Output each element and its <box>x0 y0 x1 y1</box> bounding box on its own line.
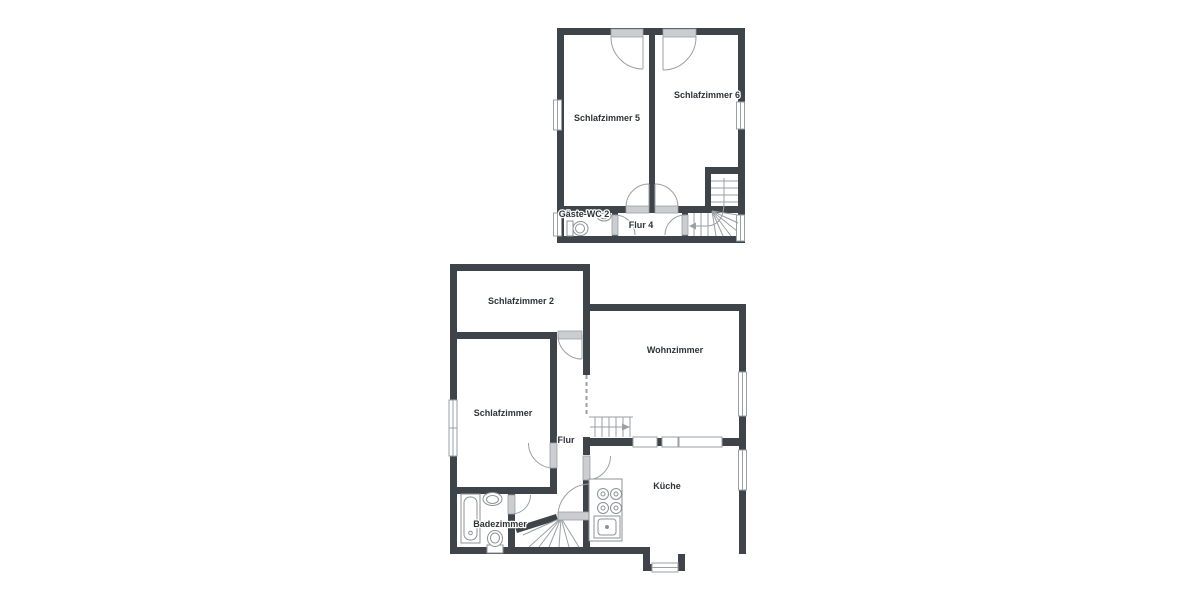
upper-floor-plan: Schlafzimmer 5 Schlafzimmer 6 Gäste-WC 2… <box>554 28 746 243</box>
window-wohnzimmer-icon <box>739 372 747 416</box>
window-entry-icon <box>652 563 678 572</box>
pass-through-window-icon <box>633 437 722 447</box>
toilet-icon <box>567 221 588 236</box>
floorplan-canvas: Schlafzimmer 5 Schlafzimmer 6 Gäste-WC 2… <box>0 0 1200 600</box>
room-label-schlafzimmer6: Schlafzimmer 6 <box>674 90 740 100</box>
door-schlafzimmer-icon <box>529 443 558 468</box>
bathroom-sink-icon <box>483 493 502 506</box>
room-label-badezimmer: Badezimmer <box>473 519 527 529</box>
window-kueche-icon <box>739 450 747 490</box>
room-label-gaeste-wc: Gäste-WC 2 <box>559 209 610 219</box>
window-schlafzimmer-icon <box>449 400 457 456</box>
lower-floor-plan: Schlafzimmer 2 Wohnzimmer Schlafzimmer F… <box>449 264 747 572</box>
oven-icon <box>594 516 620 538</box>
window-schlafzimmer5-icon <box>554 100 562 130</box>
door-badezimmer-icon <box>508 495 531 514</box>
door-schlafzimmer2-icon <box>558 331 582 359</box>
door-schlafzimmer6-icon <box>663 29 696 70</box>
room-label-schlafzimmer: Schlafzimmer <box>474 408 533 418</box>
room-label-schlafzimmer2: Schlafzimmer 2 <box>488 296 554 306</box>
door-flur4-schlafzimmer5-icon <box>626 184 649 213</box>
room-label-wohnzimmer: Wohnzimmer <box>647 345 704 355</box>
door-schlafzimmer5-icon <box>611 29 643 69</box>
door-flur4-stairs-icon <box>665 215 688 235</box>
room-label-schlafzimmer5: Schlafzimmer 5 <box>574 113 640 123</box>
bathroom-toilet-icon <box>487 531 503 554</box>
door-flur4-schlafzimmer6-icon <box>655 184 678 213</box>
window-stairs-upper-icon <box>737 215 745 241</box>
room-label-flur: Flur <box>558 435 575 445</box>
floorplan-drawing: Schlafzimmer 5 Schlafzimmer 6 Gäste-WC 2… <box>0 0 1200 600</box>
door-kueche-icon <box>583 456 611 480</box>
room-label-flur4: Flur 4 <box>629 220 654 230</box>
staircase-up-run-icon <box>589 417 633 437</box>
window-schlafzimmer6-icon <box>737 102 745 129</box>
room-label-kueche: Küche <box>653 481 681 491</box>
